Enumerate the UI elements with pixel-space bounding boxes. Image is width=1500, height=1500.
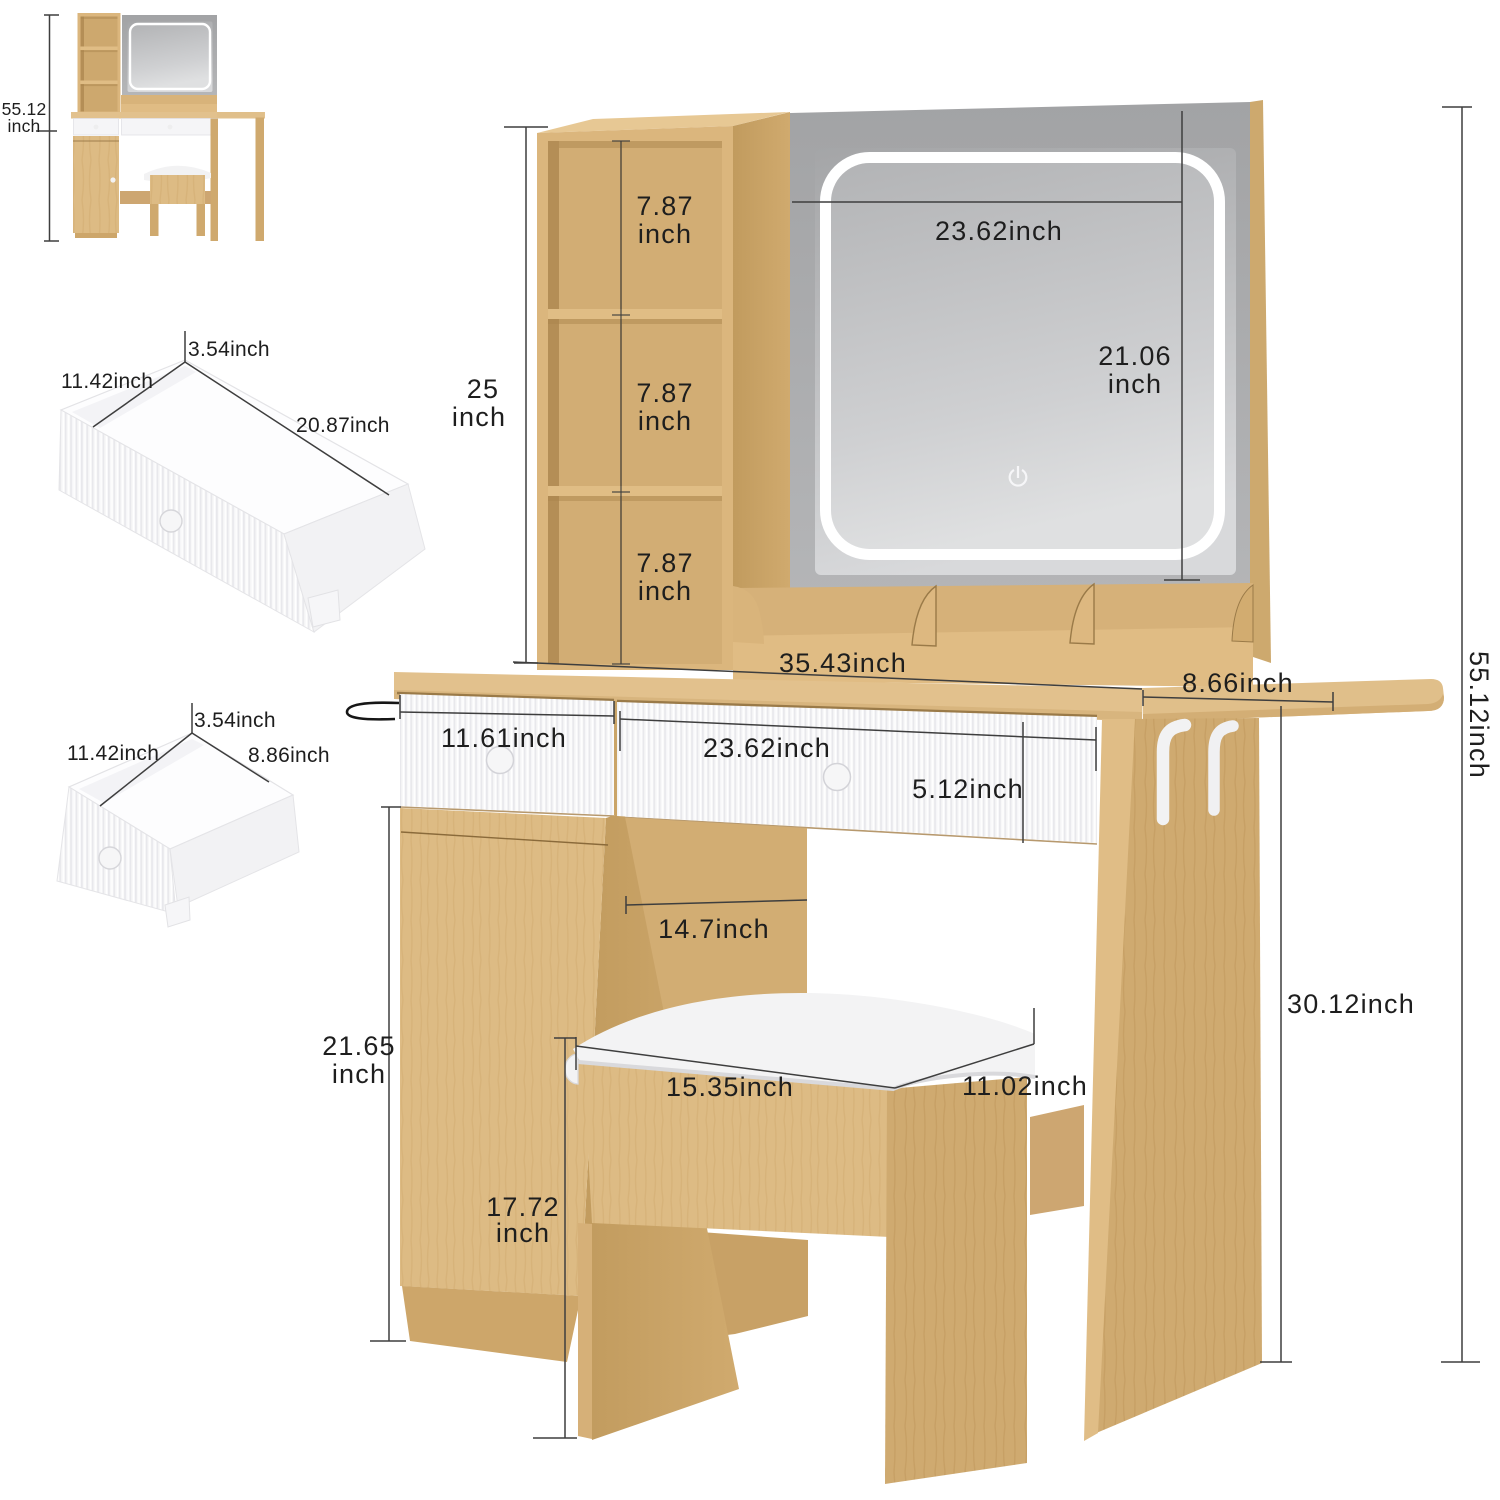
svg-text:inch: inch	[496, 1218, 550, 1248]
svg-text:35.43inch: 35.43inch	[779, 648, 907, 678]
svg-text:inch: inch	[332, 1059, 386, 1089]
svg-text:14.7inch: 14.7inch	[658, 914, 770, 944]
svg-text:inch: inch	[8, 116, 41, 136]
svg-text:8.86inch: 8.86inch	[248, 744, 330, 767]
svg-text:23.62inch: 23.62inch	[703, 733, 831, 763]
svg-text:7.87: 7.87	[636, 548, 693, 578]
svg-text:11.42inch: 11.42inch	[67, 742, 159, 765]
svg-text:5.12inch: 5.12inch	[912, 774, 1024, 804]
svg-text:20.87inch: 20.87inch	[296, 414, 390, 437]
svg-text:3.54inch: 3.54inch	[188, 338, 270, 361]
svg-text:25: 25	[467, 374, 499, 404]
svg-text:3.54inch: 3.54inch	[194, 709, 276, 732]
svg-text:11.02inch: 11.02inch	[962, 1071, 1088, 1101]
svg-text:inch: inch	[452, 402, 506, 432]
svg-text:15.35inch: 15.35inch	[666, 1072, 794, 1102]
svg-text:30.12inch: 30.12inch	[1287, 989, 1415, 1019]
svg-text:inch: inch	[1108, 369, 1162, 399]
svg-text:8.66inch: 8.66inch	[1182, 668, 1294, 698]
svg-text:11.42inch: 11.42inch	[61, 370, 153, 393]
svg-text:21.06: 21.06	[1098, 341, 1172, 371]
svg-text:7.87: 7.87	[636, 378, 693, 408]
svg-text:55.12inch: 55.12inch	[1464, 651, 1494, 779]
svg-text:21.65: 21.65	[322, 1031, 396, 1061]
svg-text:inch: inch	[638, 406, 692, 436]
svg-text:7.87: 7.87	[636, 191, 693, 221]
svg-text:23.62inch: 23.62inch	[935, 216, 1063, 246]
svg-text:11.61inch: 11.61inch	[441, 723, 567, 753]
svg-text:inch: inch	[638, 219, 692, 249]
svg-text:inch: inch	[638, 576, 692, 606]
